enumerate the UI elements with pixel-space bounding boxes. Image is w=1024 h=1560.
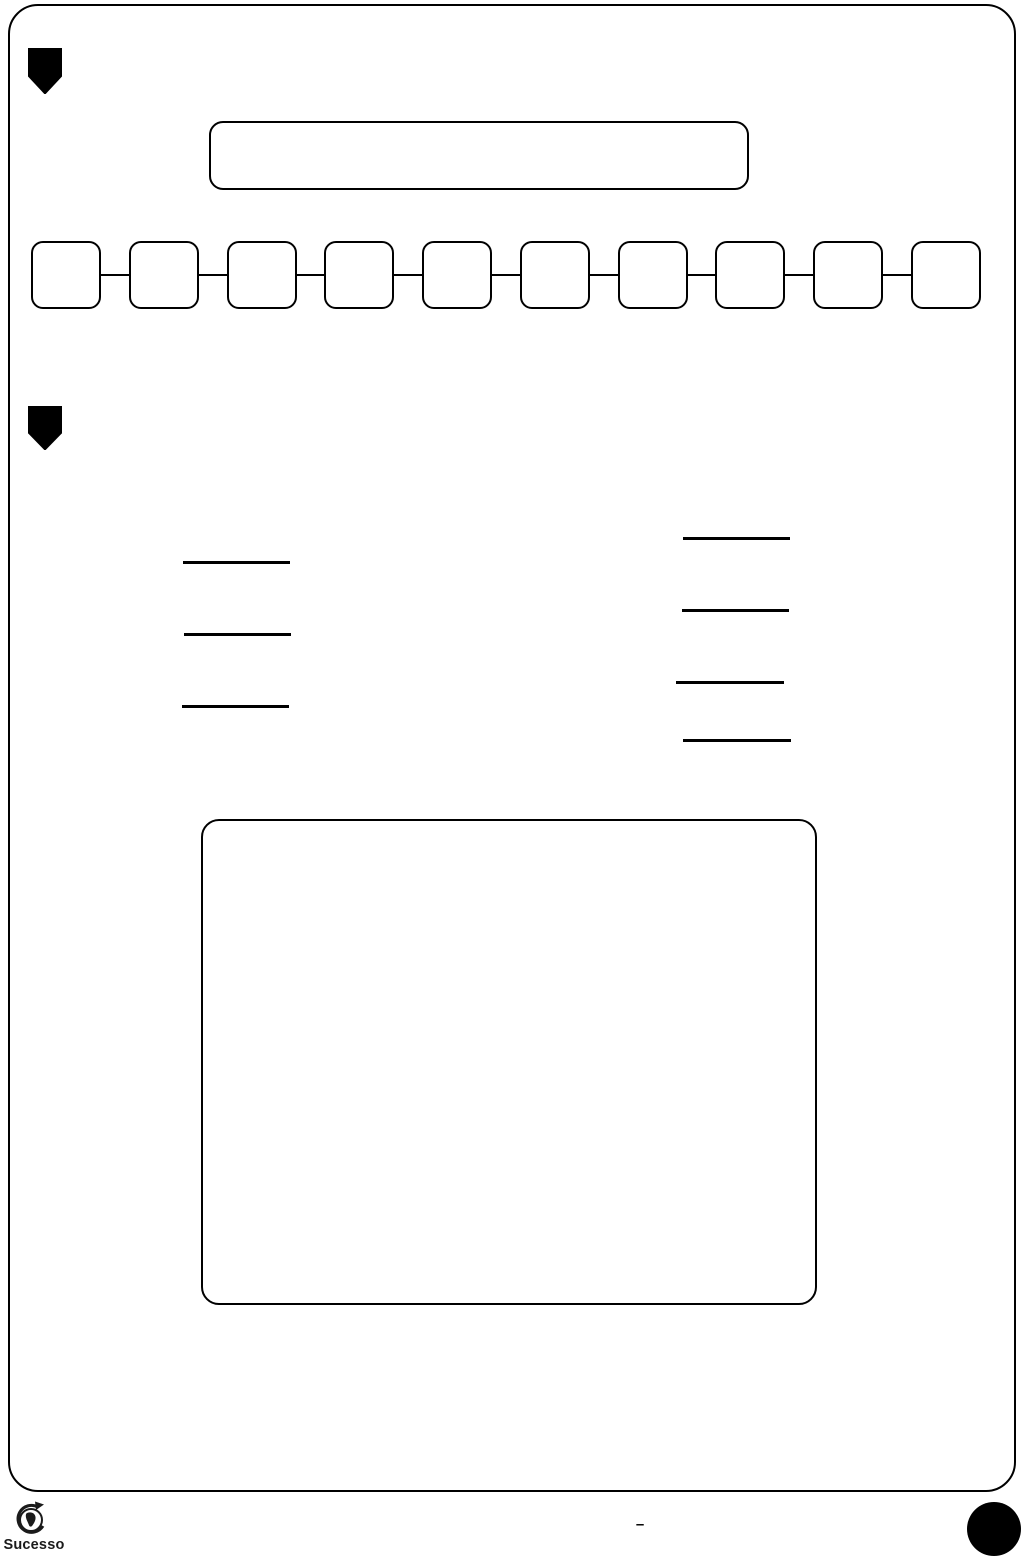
- answer-blank-line: [183, 561, 290, 564]
- answer-blank-line: [683, 537, 790, 540]
- sequence-box: [715, 241, 785, 309]
- sequence-boxes-row: [31, 241, 981, 309]
- connector-line: [394, 274, 422, 276]
- corner-circle-marker: [967, 1502, 1021, 1556]
- sequence-box: [520, 241, 590, 309]
- connector-line: [688, 274, 716, 276]
- brand-name: Sucesso: [0, 1537, 68, 1553]
- answer-blank-line: [184, 633, 291, 636]
- connector-line: [297, 274, 325, 276]
- title-answer-box: [209, 121, 749, 190]
- connector-line: [101, 274, 129, 276]
- sequence-box: [31, 241, 101, 309]
- answer-blank-line: [682, 609, 789, 612]
- sequence-box: [422, 241, 492, 309]
- answer-area-box: [201, 819, 817, 1305]
- connector-line: [590, 274, 618, 276]
- sequence-box: [129, 241, 199, 309]
- connector-line: [492, 274, 520, 276]
- answer-blank-line: [182, 705, 289, 708]
- answer-blank-line: [676, 681, 784, 684]
- connector-line: [785, 274, 813, 276]
- sequence-box: [618, 241, 688, 309]
- answer-blank-line: [683, 739, 791, 742]
- page-number-dash: –: [629, 1516, 651, 1533]
- sequence-box: [813, 241, 883, 309]
- sequence-box: [227, 241, 297, 309]
- sequence-box: [324, 241, 394, 309]
- connector-line: [883, 274, 911, 276]
- sequence-box: [911, 241, 981, 309]
- connector-line: [199, 274, 227, 276]
- globe-swoosh-icon: [10, 1500, 50, 1538]
